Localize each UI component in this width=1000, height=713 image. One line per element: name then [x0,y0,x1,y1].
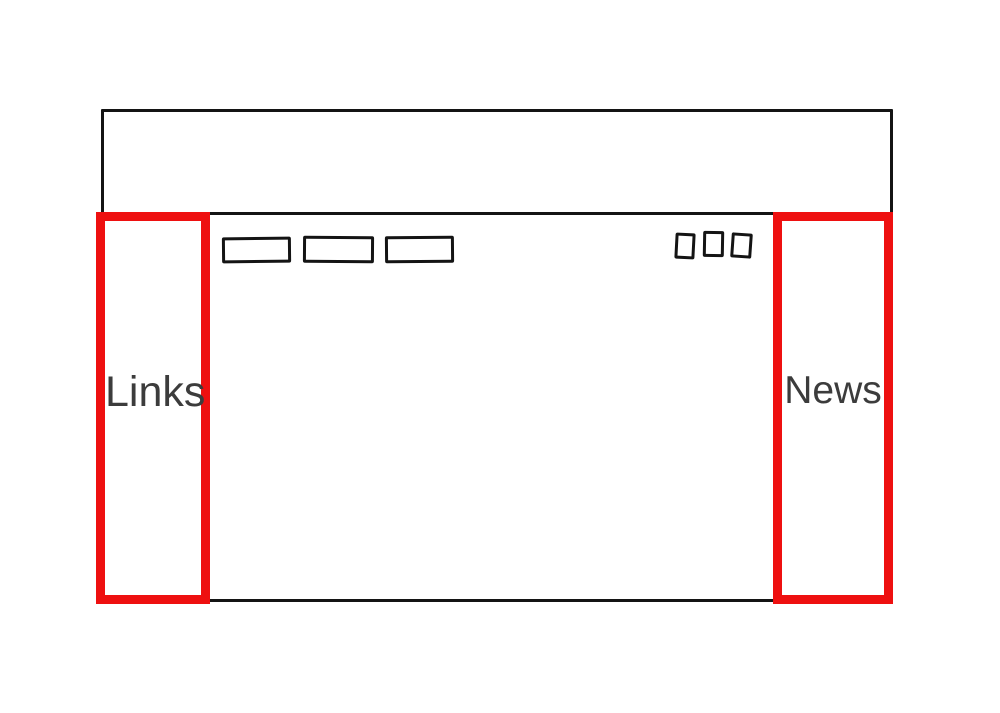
header-box [101,109,893,215]
nav-button-placeholder-1[interactable] [222,237,291,264]
links-sidebar-box[interactable]: Links [96,212,210,604]
nav-button-placeholder-3[interactable] [385,236,454,264]
nav-button-placeholder-2[interactable] [303,236,374,263]
news-sidebar-label: News [782,369,884,413]
links-sidebar-label: Links [105,368,201,416]
content-area-bottom-border [206,599,776,602]
wireframe-canvas: Links News [0,0,1000,713]
action-square-placeholder-1[interactable] [674,232,695,259]
action-square-placeholder-2[interactable] [703,231,724,257]
action-square-placeholder-3[interactable] [730,232,753,258]
news-sidebar-box[interactable]: News [773,212,893,604]
